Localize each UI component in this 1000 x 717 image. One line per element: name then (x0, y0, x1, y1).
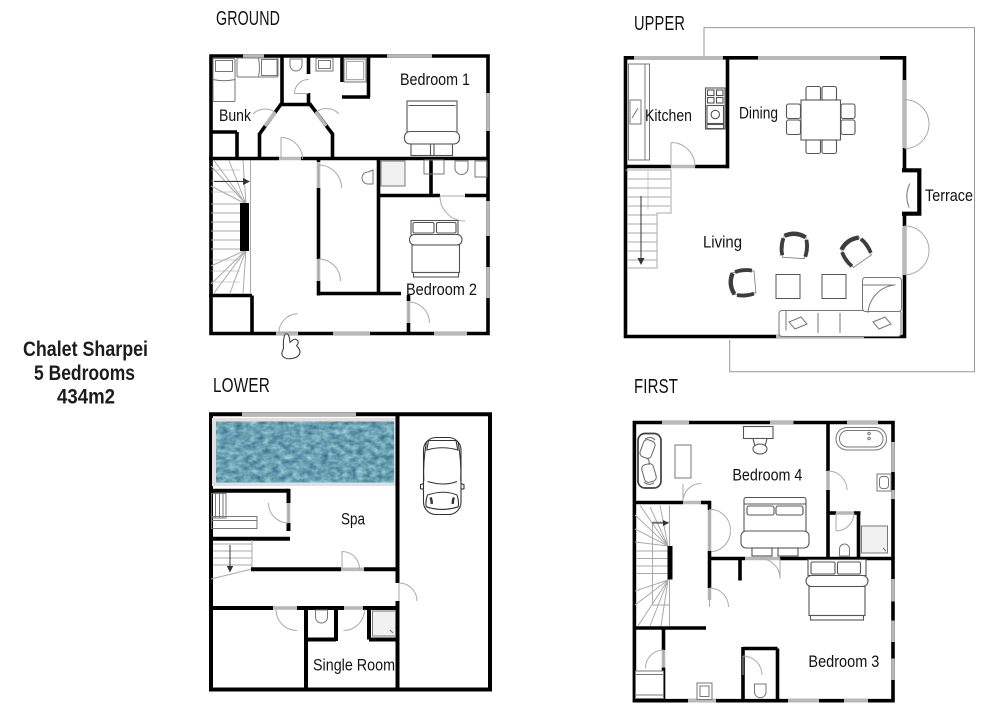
svg-text:Bedroom 4: Bedroom 4 (732, 466, 802, 485)
svg-text:Living: Living (703, 233, 742, 252)
svg-text:Terrace: Terrace (925, 186, 973, 205)
svg-text:434m2: 434m2 (57, 386, 115, 409)
svg-text:Bunk: Bunk (219, 106, 251, 125)
svg-text:5 Bedrooms: 5 Bedrooms (34, 362, 135, 385)
svg-text:Single Room: Single Room (313, 656, 395, 675)
svg-text:LOWER: LOWER (213, 375, 270, 397)
svg-text:FIRST: FIRST (634, 376, 678, 398)
svg-text:Bedroom 1: Bedroom 1 (400, 70, 470, 89)
svg-text:Bedroom 2: Bedroom 2 (406, 280, 477, 299)
svg-text:Spa: Spa (341, 510, 365, 529)
svg-text:GROUND: GROUND (216, 8, 280, 30)
svg-text:Dining: Dining (739, 104, 778, 123)
svg-text:Kitchen: Kitchen (645, 106, 692, 125)
svg-text:Chalet Sharpei: Chalet Sharpei (23, 338, 148, 361)
svg-text:UPPER: UPPER (634, 13, 685, 35)
svg-text:Bedroom 3: Bedroom 3 (808, 652, 879, 671)
